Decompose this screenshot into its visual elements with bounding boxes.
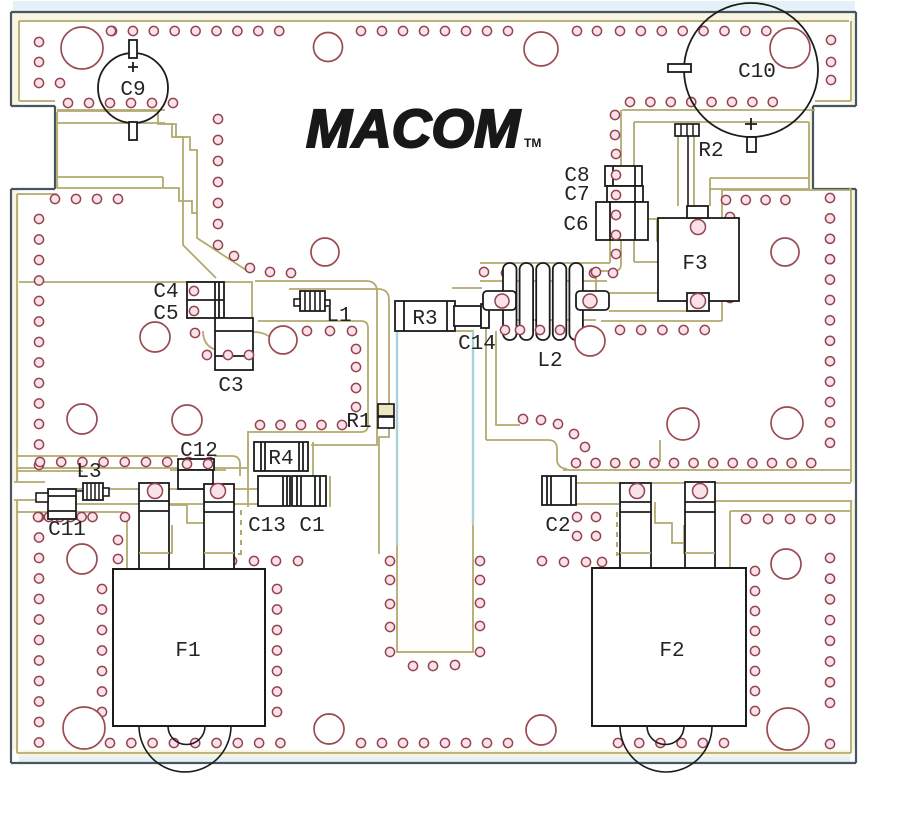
- svg-text:R1: R1: [346, 411, 371, 434]
- svg-text:R4: R4: [268, 448, 293, 471]
- svg-text:R3: R3: [412, 308, 437, 331]
- svg-text:F3: F3: [682, 253, 707, 276]
- svg-text:C7: C7: [564, 184, 589, 207]
- svg-text:C2: C2: [545, 515, 570, 538]
- svg-text:L3: L3: [76, 461, 101, 484]
- svg-text:C3: C3: [218, 375, 243, 398]
- svg-text:C5: C5: [153, 303, 178, 326]
- svg-text:L2: L2: [537, 350, 562, 373]
- svg-text:C11: C11: [48, 519, 86, 542]
- svg-text:TM: TM: [524, 136, 541, 150]
- svg-text:F1: F1: [175, 640, 200, 663]
- svg-text:C9: C9: [120, 79, 145, 102]
- svg-text:C12: C12: [180, 440, 218, 463]
- svg-text:C13: C13: [248, 515, 286, 538]
- svg-text:C1: C1: [299, 515, 324, 538]
- svg-text:C4: C4: [153, 281, 178, 304]
- svg-text:F2: F2: [659, 640, 684, 663]
- svg-text:C6: C6: [563, 214, 588, 237]
- svg-text:C10: C10: [738, 61, 776, 84]
- svg-text:C14: C14: [458, 333, 496, 356]
- svg-text:R2: R2: [698, 140, 723, 163]
- svg-text:MACOM: MACOM: [306, 99, 521, 159]
- svg-text:L1: L1: [326, 305, 351, 328]
